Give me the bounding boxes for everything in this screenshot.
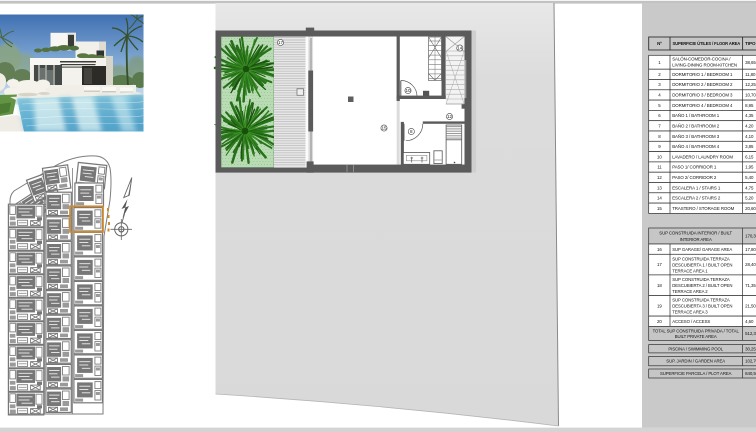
svg-text:13: 13 [657, 185, 662, 190]
svg-text:38,65: 38,65 [745, 60, 756, 65]
svg-text:5,20: 5,20 [745, 196, 754, 201]
svg-text:ACCESO / ACCESS: ACCESO / ACCESS [672, 319, 710, 324]
svg-text:BUILT PRIVATE AREA: BUILT PRIVATE AREA [675, 334, 717, 339]
svg-text:TIPO A: TIPO A [745, 41, 756, 46]
svg-text:INTERIOR AREA: INTERIOR AREA [680, 237, 712, 242]
svg-text:ESCALERA 2 / STAIRS 2: ESCALERA 2 / STAIRS 2 [672, 196, 721, 201]
svg-text:14: 14 [657, 196, 662, 201]
svg-text:LIVING-DINING ROOM-KITCHEN: LIVING-DINING ROOM-KITCHEN [672, 63, 737, 68]
svg-text:28,40: 28,40 [745, 262, 756, 267]
svg-text:4,60: 4,60 [745, 319, 754, 324]
svg-text:17,80: 17,80 [745, 247, 756, 252]
svg-text:8,95: 8,95 [745, 103, 754, 108]
svg-text:PASO 2/ CORRIDOR 2: PASO 2/ CORRIDOR 2 [672, 175, 717, 180]
svg-text:DORMITORIO 4 / BEDROOM 4: DORMITORIO 4 / BEDROOM 4 [672, 103, 733, 108]
svg-text:SUPERFICIE PARCELA / PLOT AREA: SUPERFICIE PARCELA / PLOT AREA [660, 371, 732, 376]
svg-text:12,25: 12,25 [745, 82, 756, 87]
svg-text:102,70: 102,70 [745, 359, 756, 364]
svg-text:SUP. JARDIN / GARDEN AREA: SUP. JARDIN / GARDEN AREA [666, 359, 725, 364]
svg-text:PISCINA / SWIMMING POOL: PISCINA / SWIMMING POOL [668, 346, 723, 351]
svg-text:5,40: 5,40 [745, 175, 754, 180]
svg-text:SUP GARAGE/ GARAGE AREA: SUP GARAGE/ GARAGE AREA [672, 247, 732, 252]
svg-text:Nº: Nº [657, 41, 662, 46]
svg-text:SUP CONSTRUIDA TERRAZA: SUP CONSTRUIDA TERRAZA [672, 277, 730, 282]
svg-text:SUPERFICIE ÚTILES / FLOOR AREA: SUPERFICIE ÚTILES / FLOOR AREA [673, 41, 741, 46]
svg-text:TRASTERO / STORAGE ROOM: TRASTERO / STORAGE ROOM [672, 206, 734, 211]
svg-text:15: 15 [657, 206, 662, 211]
svg-text:21,50: 21,50 [745, 303, 756, 308]
svg-text:TERRACE AREA 3: TERRACE AREA 3 [672, 310, 708, 315]
svg-text:DESCUBIERTA 3 / BUILT OPEN: DESCUBIERTA 3 / BUILT OPEN [672, 304, 732, 309]
svg-text:18: 18 [657, 283, 662, 288]
svg-text:16: 16 [657, 247, 662, 252]
svg-text:BAÑO 1 / BATHROOM 1: BAÑO 1 / BATHROOM 1 [672, 113, 720, 118]
svg-text:3,85: 3,85 [745, 144, 754, 149]
svg-text:LAVADERO / LAUNDRY ROOM: LAVADERO / LAUNDRY ROOM [672, 154, 733, 159]
svg-text:BAÑO 3 / BATHROOM 3: BAÑO 3 / BATHROOM 3 [672, 134, 720, 139]
svg-text:DORMITORIO 2 / BEDROOM 2: DORMITORIO 2 / BEDROOM 2 [672, 82, 733, 87]
svg-text:20: 20 [657, 319, 662, 324]
svg-text:840,50: 840,50 [745, 371, 756, 376]
svg-text:10: 10 [405, 88, 411, 93]
svg-text:TERRACE AREA 1: TERRACE AREA 1 [672, 268, 708, 273]
svg-text:4,10: 4,10 [745, 134, 754, 139]
svg-text:4,20: 4,20 [745, 123, 754, 128]
svg-text:11: 11 [657, 165, 662, 170]
svg-text:ESCALERA 1 / STAIRS 1: ESCALERA 1 / STAIRS 1 [672, 185, 721, 190]
svg-text:10,70: 10,70 [745, 93, 756, 98]
svg-text:SUP CONSTRUIDA TERRAZA: SUP CONSTRUIDA TERRAZA [672, 298, 730, 303]
svg-text:12: 12 [657, 175, 662, 180]
svg-text:8: 8 [410, 129, 413, 134]
svg-text:PASO 1/ CORRIDOR 1: PASO 1/ CORRIDOR 1 [672, 165, 717, 170]
svg-text:1,95: 1,95 [745, 165, 754, 170]
svg-text:4,35: 4,35 [745, 113, 754, 118]
svg-text:11,80: 11,80 [745, 72, 756, 77]
svg-text:BAÑO 4 / BATHROOM 4: BAÑO 4 / BATHROOM 4 [672, 144, 720, 149]
svg-text:SUP CONSTRUIDA TERRAZA: SUP CONSTRUIDA TERRAZA [672, 257, 730, 262]
svg-text:BAÑO 2 / BATHROOM 2: BAÑO 2 / BATHROOM 2 [672, 123, 720, 128]
svg-text:TERRACE AREA 2: TERRACE AREA 2 [672, 289, 708, 294]
svg-text:12: 12 [447, 114, 453, 119]
svg-text:71,35: 71,35 [745, 283, 756, 288]
svg-text:30,25: 30,25 [745, 346, 756, 351]
svg-text:SUP CONSTRUIDA INTERIOR / BUIL: SUP CONSTRUIDA INTERIOR / BUILT [659, 231, 732, 236]
svg-text:17: 17 [657, 262, 662, 267]
svg-text:TOTAL SUP CONSTRUIDA PRIVADA /: TOTAL SUP CONSTRUIDA PRIVADA / TOTAL [653, 328, 740, 333]
svg-text:6,15: 6,15 [745, 154, 754, 159]
svg-text:20,60: 20,60 [745, 206, 756, 211]
svg-text:DESCUBIERTA 1 / BUILT OPEN: DESCUBIERTA 1 / BUILT OPEN [672, 262, 732, 267]
svg-text:19: 19 [657, 303, 662, 308]
svg-text:14: 14 [457, 46, 463, 51]
svg-text:4,75: 4,75 [745, 185, 754, 190]
svg-text:15: 15 [381, 126, 387, 131]
svg-text:DORMITORIO 1 / BEDROOM 1: DORMITORIO 1 / BEDROOM 1 [672, 72, 733, 77]
svg-text:170,35: 170,35 [745, 234, 756, 239]
svg-text:SALÓN-COMEDOR-COCINA /: SALÓN-COMEDOR-COCINA / [672, 57, 731, 62]
svg-text:DESCUBIERTA 2 / BUILT OPEN: DESCUBIERTA 2 / BUILT OPEN [672, 283, 732, 288]
svg-text:17: 17 [278, 40, 284, 45]
svg-text:DORMITORIO 3 / BEDROOM 3: DORMITORIO 3 / BEDROOM 3 [672, 93, 733, 98]
svg-text:512,35: 512,35 [745, 331, 756, 336]
svg-text:10: 10 [657, 154, 662, 159]
